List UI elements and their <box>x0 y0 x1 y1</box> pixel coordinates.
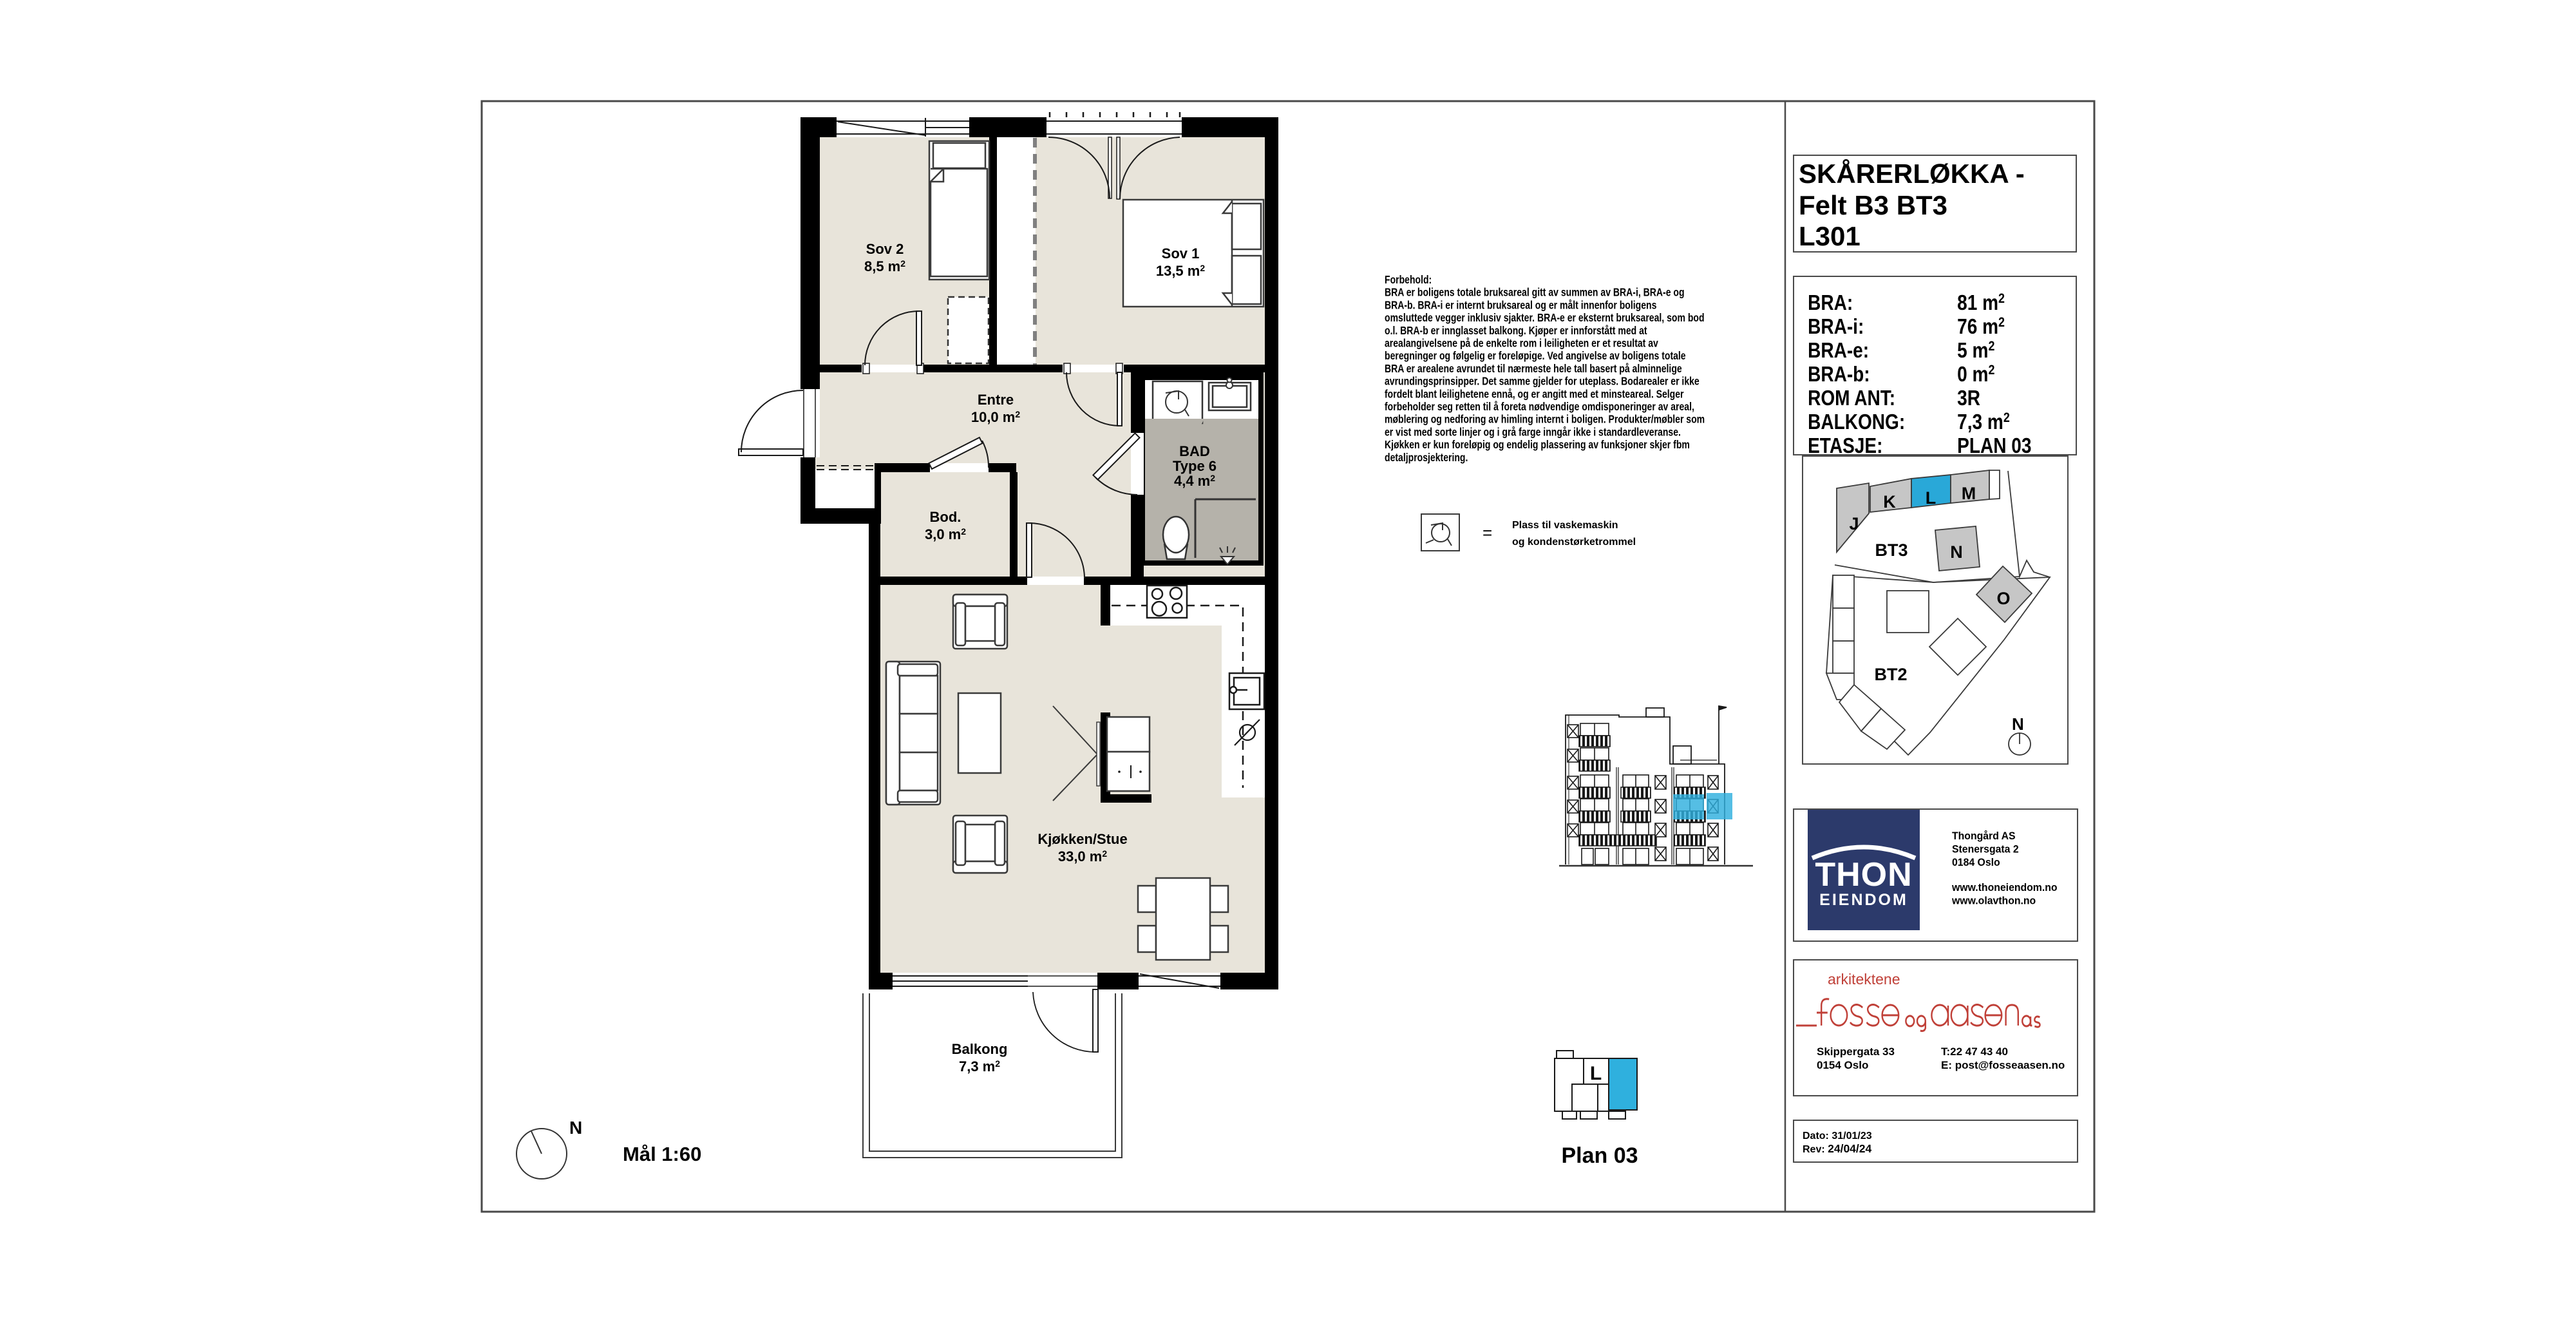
svg-text:BRA er arealene avrundet til n: BRA er arealene avrundet til nærmeste he… <box>1385 362 1682 375</box>
svg-text:o.l. BRA-b er innglasset balko: o.l. BRA-b er innglasset balkong. Kjøper… <box>1385 324 1647 337</box>
svg-text:ETASJE:: ETASJE: <box>1808 434 1882 458</box>
svg-text:7,3 m2: 7,3 m2 <box>1957 410 2010 434</box>
svg-text:Forbehold:: Forbehold: <box>1385 273 1432 286</box>
svg-text:forbeholder seg retten til å f: forbeholder seg retten til å foreta nødv… <box>1385 400 1694 413</box>
svg-text:beregninger og følgelig er for: beregninger og følgelig er foreløpige. V… <box>1385 350 1686 363</box>
svg-text:omsluttede vegger inklusiv sja: omsluttede vegger inklusiv sjakter. BRA-… <box>1385 311 1705 324</box>
svg-text:arealangivelsene på de enkelte: arealangivelsene på de enkelte rom i lei… <box>1385 337 1658 350</box>
svg-text:L: L <box>1926 488 1937 508</box>
svg-text:L301: L301 <box>1799 221 1861 251</box>
svg-text:76 m2: 76 m2 <box>1957 315 2005 339</box>
svg-text:Sov 2: Sov 2 <box>866 241 904 257</box>
svg-text:N: N <box>1950 542 1963 562</box>
svg-text:avrundingsprinsipper. Det samm: avrundingsprinsipper. Det samme gjelder … <box>1385 375 1700 388</box>
svg-text:O: O <box>1996 589 2010 608</box>
svg-text:7,3 m2: 7,3 m2 <box>959 1058 1000 1074</box>
svg-text:Plass til vaskemaskin: Plass til vaskemaskin <box>1512 520 1618 531</box>
svg-text:M: M <box>1962 484 1976 503</box>
svg-text:BALKONG:: BALKONG: <box>1808 410 1905 434</box>
svg-text:=: = <box>1482 523 1492 542</box>
svg-text:www.thoneiendom.no: www.thoneiendom.no <box>1951 882 2058 894</box>
svg-text:Type 6: Type 6 <box>1173 458 1217 474</box>
svg-text:Kjøkken er kun foreløpig og en: Kjøkken er kun foreløpig og endelig plas… <box>1385 438 1690 451</box>
svg-text:Stenersgata 2: Stenersgata 2 <box>1952 843 2019 855</box>
svg-text:0184 Oslo: 0184 Oslo <box>1952 857 2000 869</box>
svg-text:BRA-b. BRA-i er internt bruksa: BRA-b. BRA-i er internt bruksareal og er… <box>1385 299 1656 312</box>
svg-text:BT2: BT2 <box>1874 665 1907 684</box>
svg-text:Skippergata 33: Skippergata 33 <box>1817 1046 1895 1058</box>
svg-text:BRA-e:: BRA-e: <box>1808 339 1869 363</box>
svg-text:3R: 3R <box>1957 387 1980 410</box>
svg-text:4,4 m2: 4,4 m2 <box>1174 473 1215 489</box>
svg-text:Entre: Entre <box>978 392 1014 408</box>
svg-text:og kondenstørketrommel: og kondenstørketrommel <box>1512 537 1636 548</box>
svg-text:K: K <box>1883 492 1896 511</box>
svg-text:8,5 m2: 8,5 m2 <box>864 258 905 274</box>
svg-text:Balkong: Balkong <box>952 1041 1008 1057</box>
svg-text:arkitektene: arkitektene <box>1828 971 1900 988</box>
svg-text:BT3: BT3 <box>1875 540 1908 560</box>
svg-text:Kjøkken/Stue: Kjøkken/Stue <box>1037 831 1127 847</box>
svg-text:N: N <box>569 1118 582 1138</box>
svg-text:BAD: BAD <box>1179 443 1210 459</box>
svg-text:Plan 03: Plan 03 <box>1561 1143 1638 1168</box>
svg-text:N: N <box>2012 714 2024 734</box>
svg-text:10,0 m2: 10,0 m2 <box>971 409 1021 425</box>
svg-text:3,0 m2: 3,0 m2 <box>925 526 966 542</box>
svg-text:0154 Oslo: 0154 Oslo <box>1817 1059 1868 1071</box>
svg-text:Thongård AS: Thongård AS <box>1952 830 2016 843</box>
svg-text:detaljprosjektering.: detaljprosjektering. <box>1385 451 1468 464</box>
svg-text:PLAN 03: PLAN 03 <box>1957 434 2031 458</box>
svg-text:Bod.: Bod. <box>930 509 961 525</box>
svg-text:EIENDOM: EIENDOM <box>1819 891 1908 909</box>
svg-text:81 m2: 81 m2 <box>1957 291 2005 315</box>
svg-text:L: L <box>1590 1063 1602 1084</box>
svg-text:BRA-i:: BRA-i: <box>1808 315 1864 339</box>
svg-text:T:22 47 43 40: T:22 47 43 40 <box>1941 1046 2008 1058</box>
svg-text:E: post@fosseaasen.no: E: post@fosseaasen.no <box>1941 1059 2065 1071</box>
svg-text:Dato: 31/01/23: Dato: 31/01/23 <box>1803 1131 1872 1141</box>
svg-text:www.olavthon.no: www.olavthon.no <box>1951 895 2036 907</box>
svg-text:13,5 m2: 13,5 m2 <box>1156 263 1206 279</box>
svg-text:Felt B3 BT3: Felt B3 BT3 <box>1799 190 1947 220</box>
svg-text:THON: THON <box>1815 856 1912 893</box>
svg-text:33,0 m2: 33,0 m2 <box>1058 848 1108 864</box>
svg-text:er vist med sorte linjer og i: er vist med sorte linjer og i grå farge … <box>1385 426 1681 439</box>
svg-text:ROM ANT:: ROM ANT: <box>1808 387 1895 410</box>
svg-text:J: J <box>1849 514 1859 533</box>
svg-text:BRA:: BRA: <box>1808 291 1853 315</box>
svg-text:SKÅRERLØKKA -: SKÅRERLØKKA - <box>1799 158 2025 189</box>
svg-text:Sov 1: Sov 1 <box>1162 245 1200 262</box>
svg-text:fordelt blant leilighetene enn: fordelt blant leilighetene ennå, og er a… <box>1385 388 1684 401</box>
svg-text:møblering og nedforing av himl: møblering og nedforing av himling intern… <box>1385 413 1705 426</box>
svg-text:BRA er boligens totale bruksar: BRA er boligens totale bruksareal gitt a… <box>1385 286 1685 299</box>
svg-text:Rev: 24/04/24: Rev: 24/04/24 <box>1803 1142 1872 1155</box>
svg-text:Mål 1:60: Mål 1:60 <box>623 1143 701 1165</box>
svg-text:BRA-b:: BRA-b: <box>1808 363 1870 387</box>
